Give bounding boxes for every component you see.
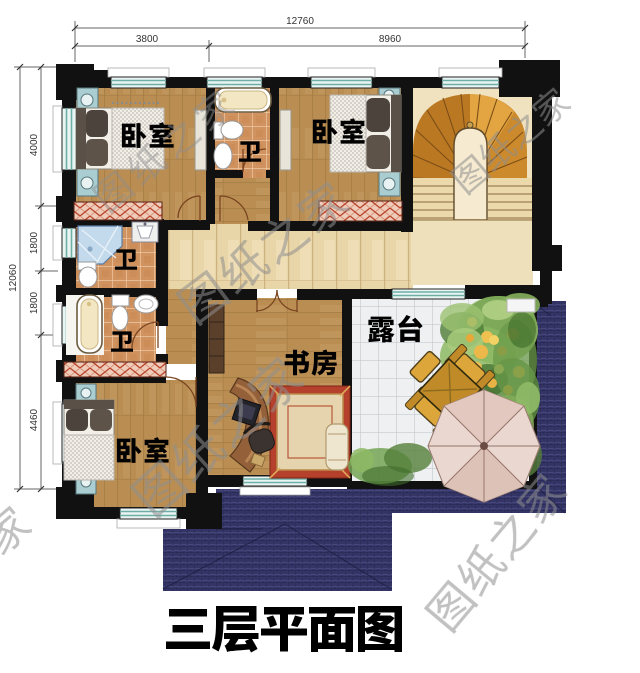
svg-text:1800: 1800 [29, 291, 40, 314]
svg-text:3800: 3800 [136, 34, 159, 45]
svg-text:1800: 1800 [29, 231, 40, 254]
svg-text:12760: 12760 [286, 16, 314, 27]
svg-text:4460: 4460 [29, 408, 40, 431]
svg-text:12060: 12060 [8, 264, 19, 292]
svg-text:4000: 4000 [29, 133, 40, 156]
svg-text:8960: 8960 [379, 34, 402, 45]
